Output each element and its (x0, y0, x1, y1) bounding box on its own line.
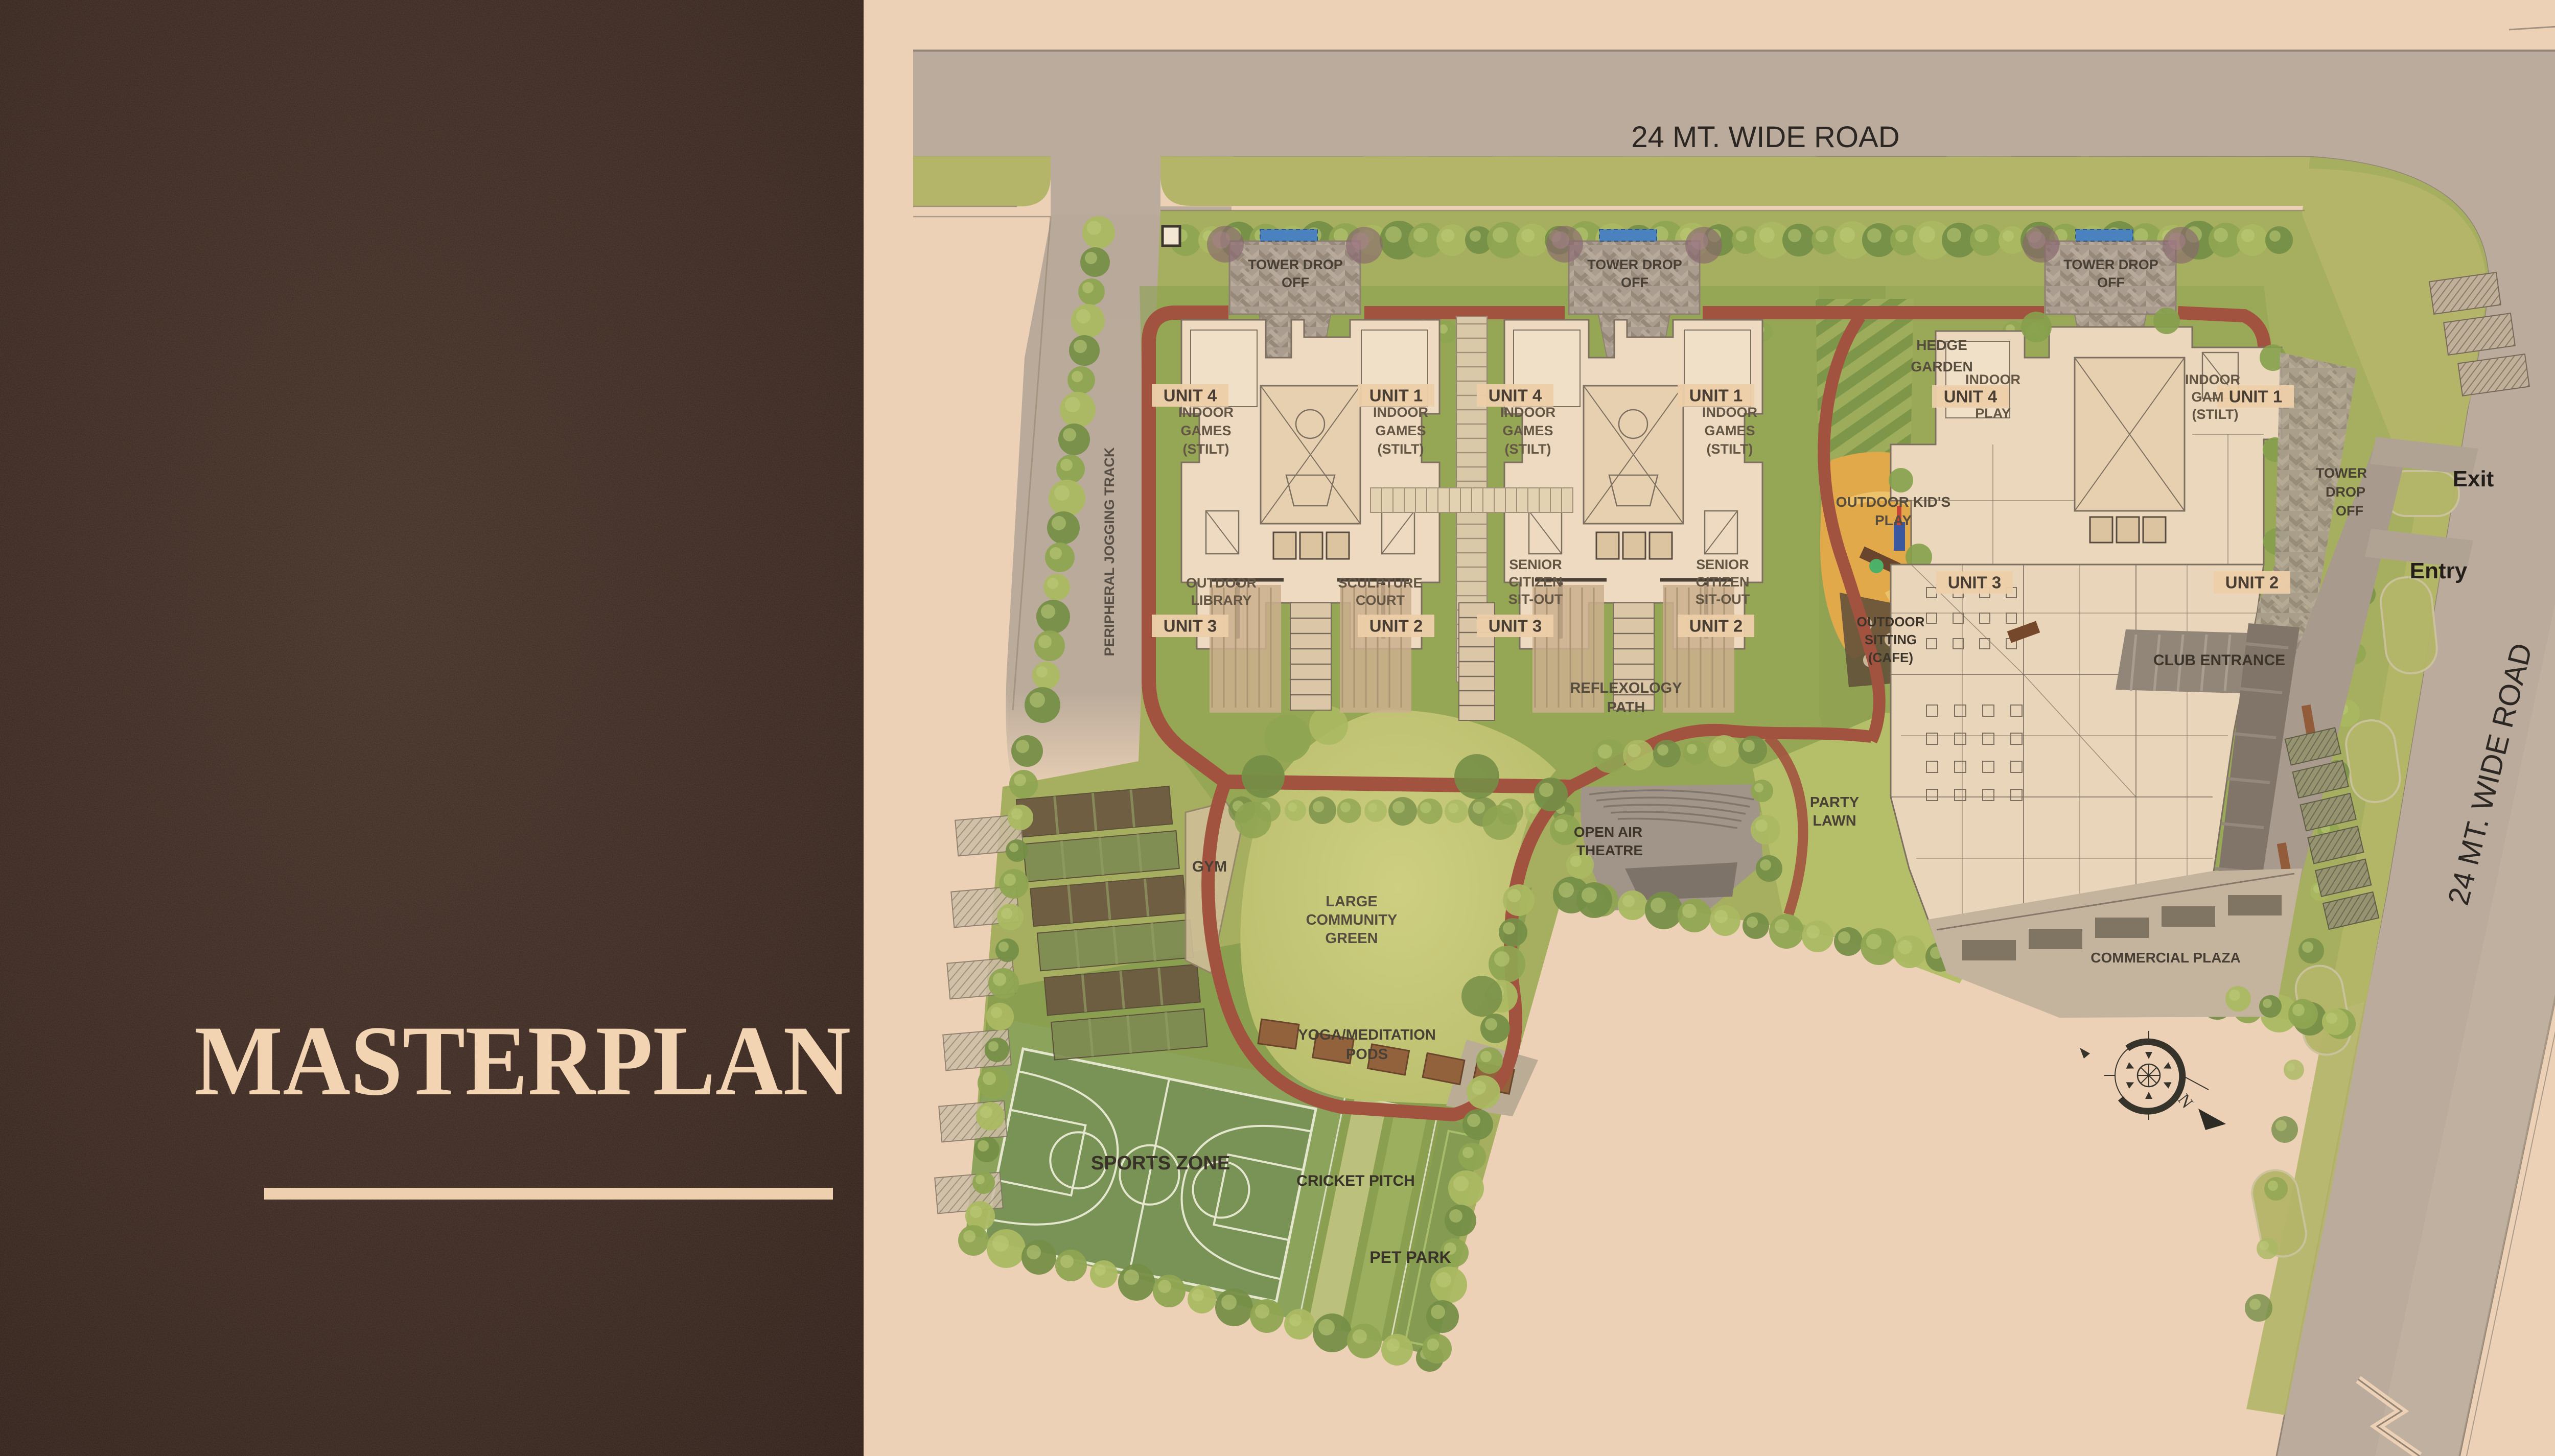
svg-text:MASTERPLAN: MASTERPLAN (194, 1005, 851, 1116)
